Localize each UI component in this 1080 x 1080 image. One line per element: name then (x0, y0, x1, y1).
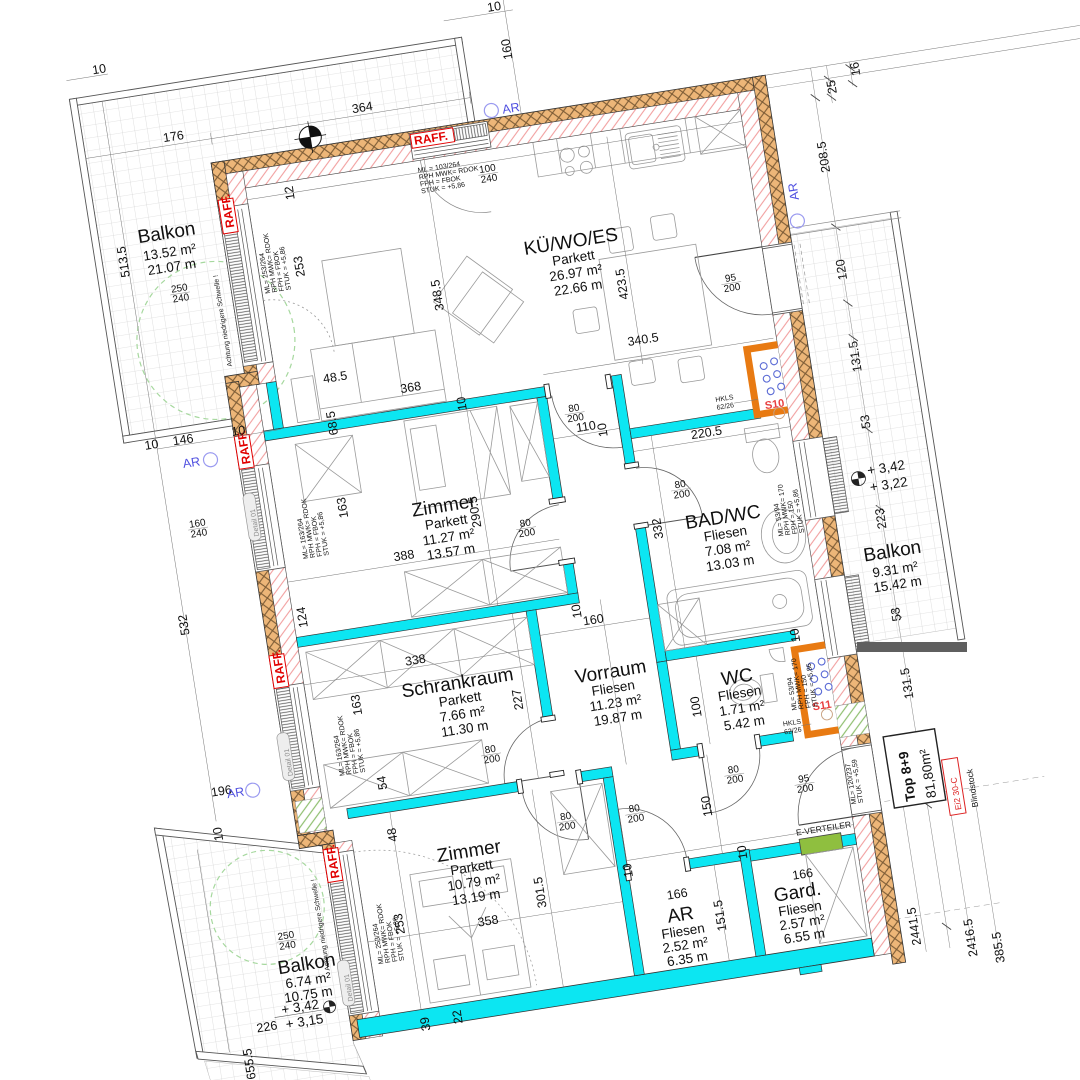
svg-text:10: 10 (569, 603, 585, 619)
svg-text:48: 48 (384, 827, 400, 843)
svg-text:12: 12 (282, 185, 298, 201)
svg-text:10: 10 (91, 61, 107, 77)
svg-text:10: 10 (454, 396, 470, 412)
svg-text:10: 10 (787, 627, 803, 643)
svg-text:AR: AR (785, 182, 802, 201)
svg-text:10: 10 (734, 844, 750, 860)
svg-text:AR: AR (226, 785, 245, 802)
svg-text:10: 10 (595, 422, 611, 438)
svg-text:10: 10 (486, 0, 502, 15)
svg-text:25: 25 (824, 79, 840, 95)
svg-text:39: 39 (417, 1016, 433, 1032)
svg-text:10: 10 (230, 423, 246, 439)
svg-text:22: 22 (450, 1009, 466, 1025)
svg-text:54: 54 (374, 775, 390, 791)
svg-text:AR: AR (501, 100, 520, 117)
svg-text:AR: AR (182, 454, 201, 471)
svg-text:10: 10 (210, 826, 226, 842)
svg-text:16: 16 (847, 61, 863, 77)
svg-text:10: 10 (620, 862, 636, 878)
svg-text:10: 10 (143, 437, 159, 453)
